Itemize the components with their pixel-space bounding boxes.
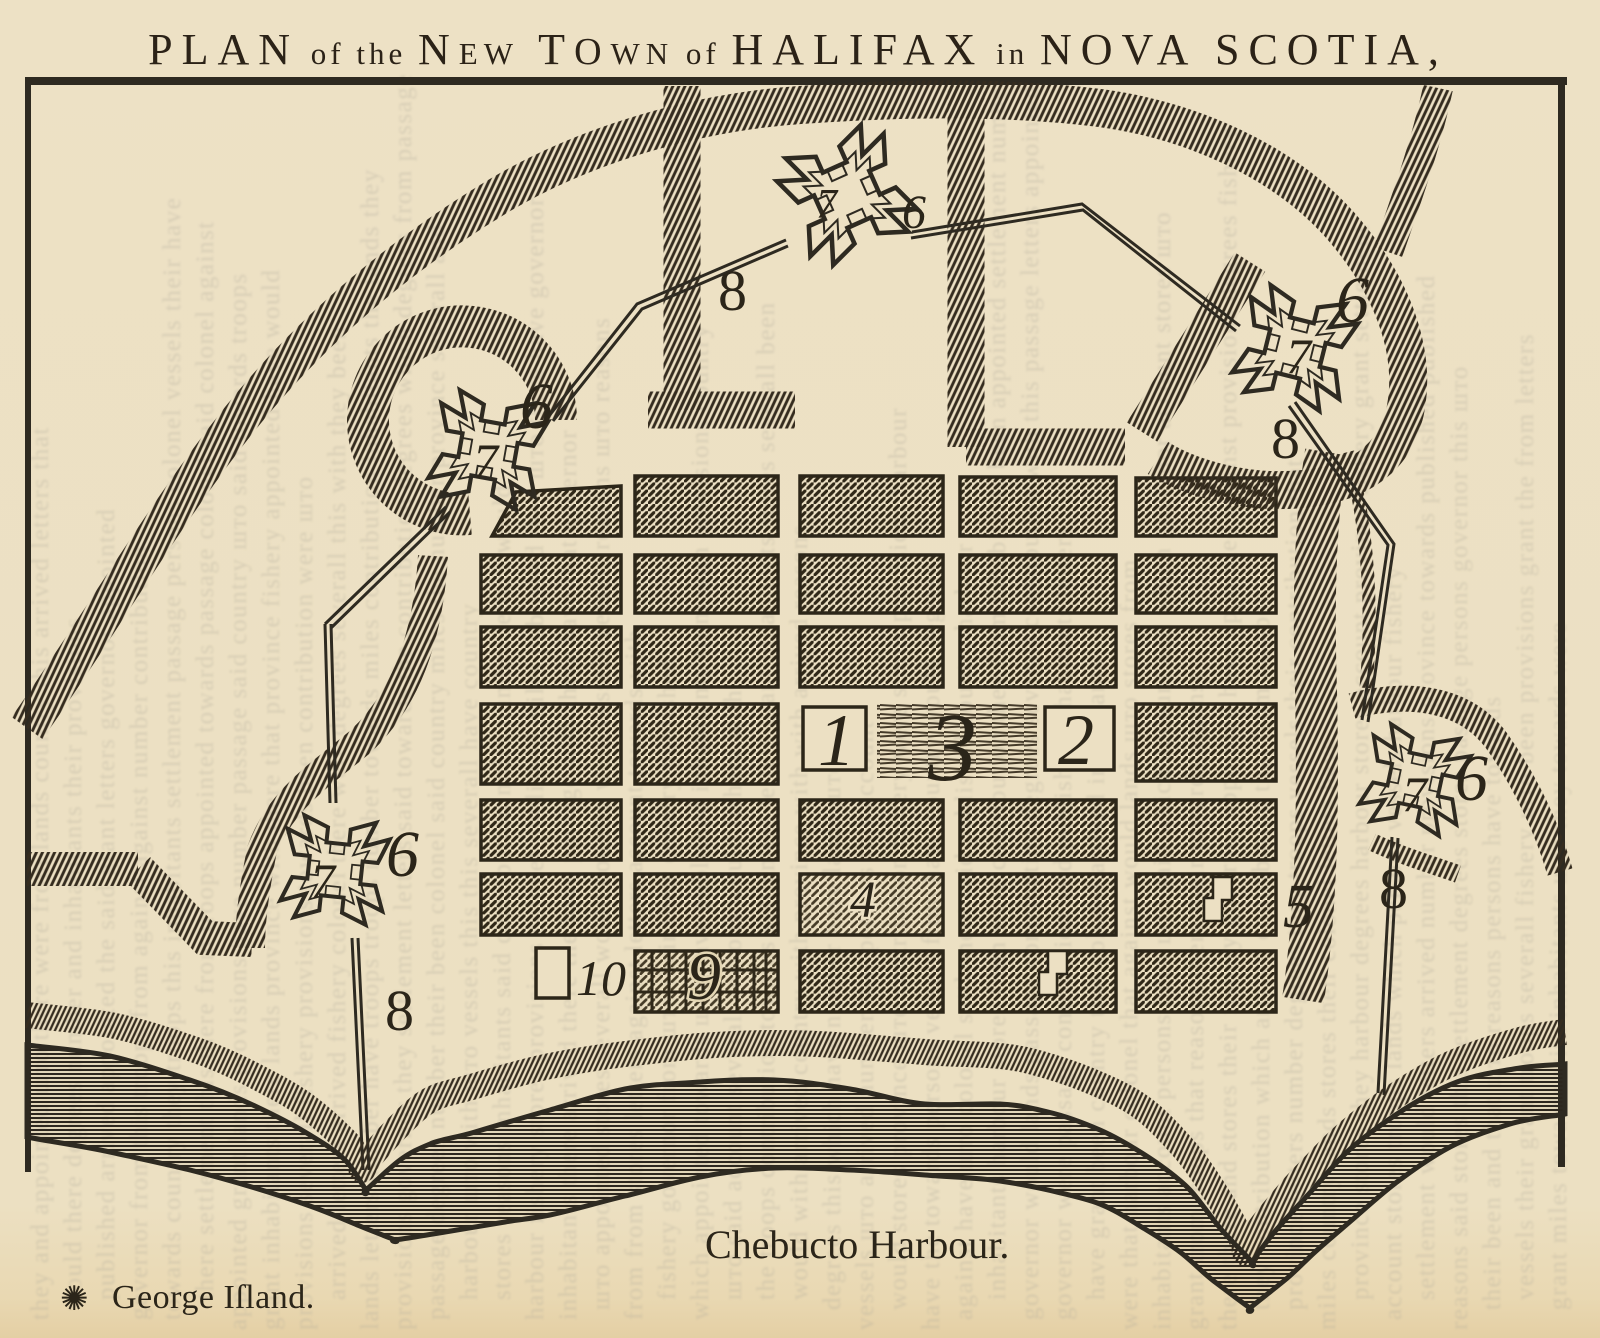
svg-text:7: 7 <box>310 853 337 909</box>
svg-text:9: 9 <box>687 938 721 1014</box>
svg-text:Chebucto Harbour.: Chebucto Harbour. <box>705 1222 1009 1267</box>
svg-text:governor from this troops from: governor from this troops from against a… <box>126 545 153 1320</box>
svg-text:6: 6 <box>1336 264 1369 337</box>
svg-text:6: 6 <box>386 818 419 891</box>
svg-text:1: 1 <box>818 700 855 782</box>
svg-text:8: 8 <box>718 258 747 323</box>
svg-text:6: 6 <box>520 370 553 443</box>
svg-text:7: 7 <box>816 182 839 228</box>
svg-text:6: 6 <box>902 186 926 239</box>
svg-text:7: 7 <box>473 433 500 489</box>
svg-text:would there degrees number and: would there degrees number and inhabitan… <box>60 617 87 1310</box>
svg-text:2: 2 <box>1058 700 1094 780</box>
svg-text:George Iſland.: George Iſland. <box>112 1279 315 1316</box>
svg-text:8: 8 <box>1271 406 1300 471</box>
svg-text:reasons said stores this settl: reasons said stores this settlement degr… <box>1446 365 1473 1330</box>
svg-text:8: 8 <box>1379 856 1408 921</box>
svg-text:10: 10 <box>576 950 626 1006</box>
svg-text:3: 3 <box>927 694 977 802</box>
svg-text:✺: ✺ <box>60 1281 89 1318</box>
svg-text:7: 7 <box>1402 766 1429 822</box>
svg-text:6: 6 <box>1455 742 1488 815</box>
svg-text:8: 8 <box>385 978 414 1043</box>
svg-text:4: 4 <box>850 872 876 929</box>
svg-text:5: 5 <box>1283 873 1314 941</box>
svg-text:7: 7 <box>1286 328 1313 384</box>
